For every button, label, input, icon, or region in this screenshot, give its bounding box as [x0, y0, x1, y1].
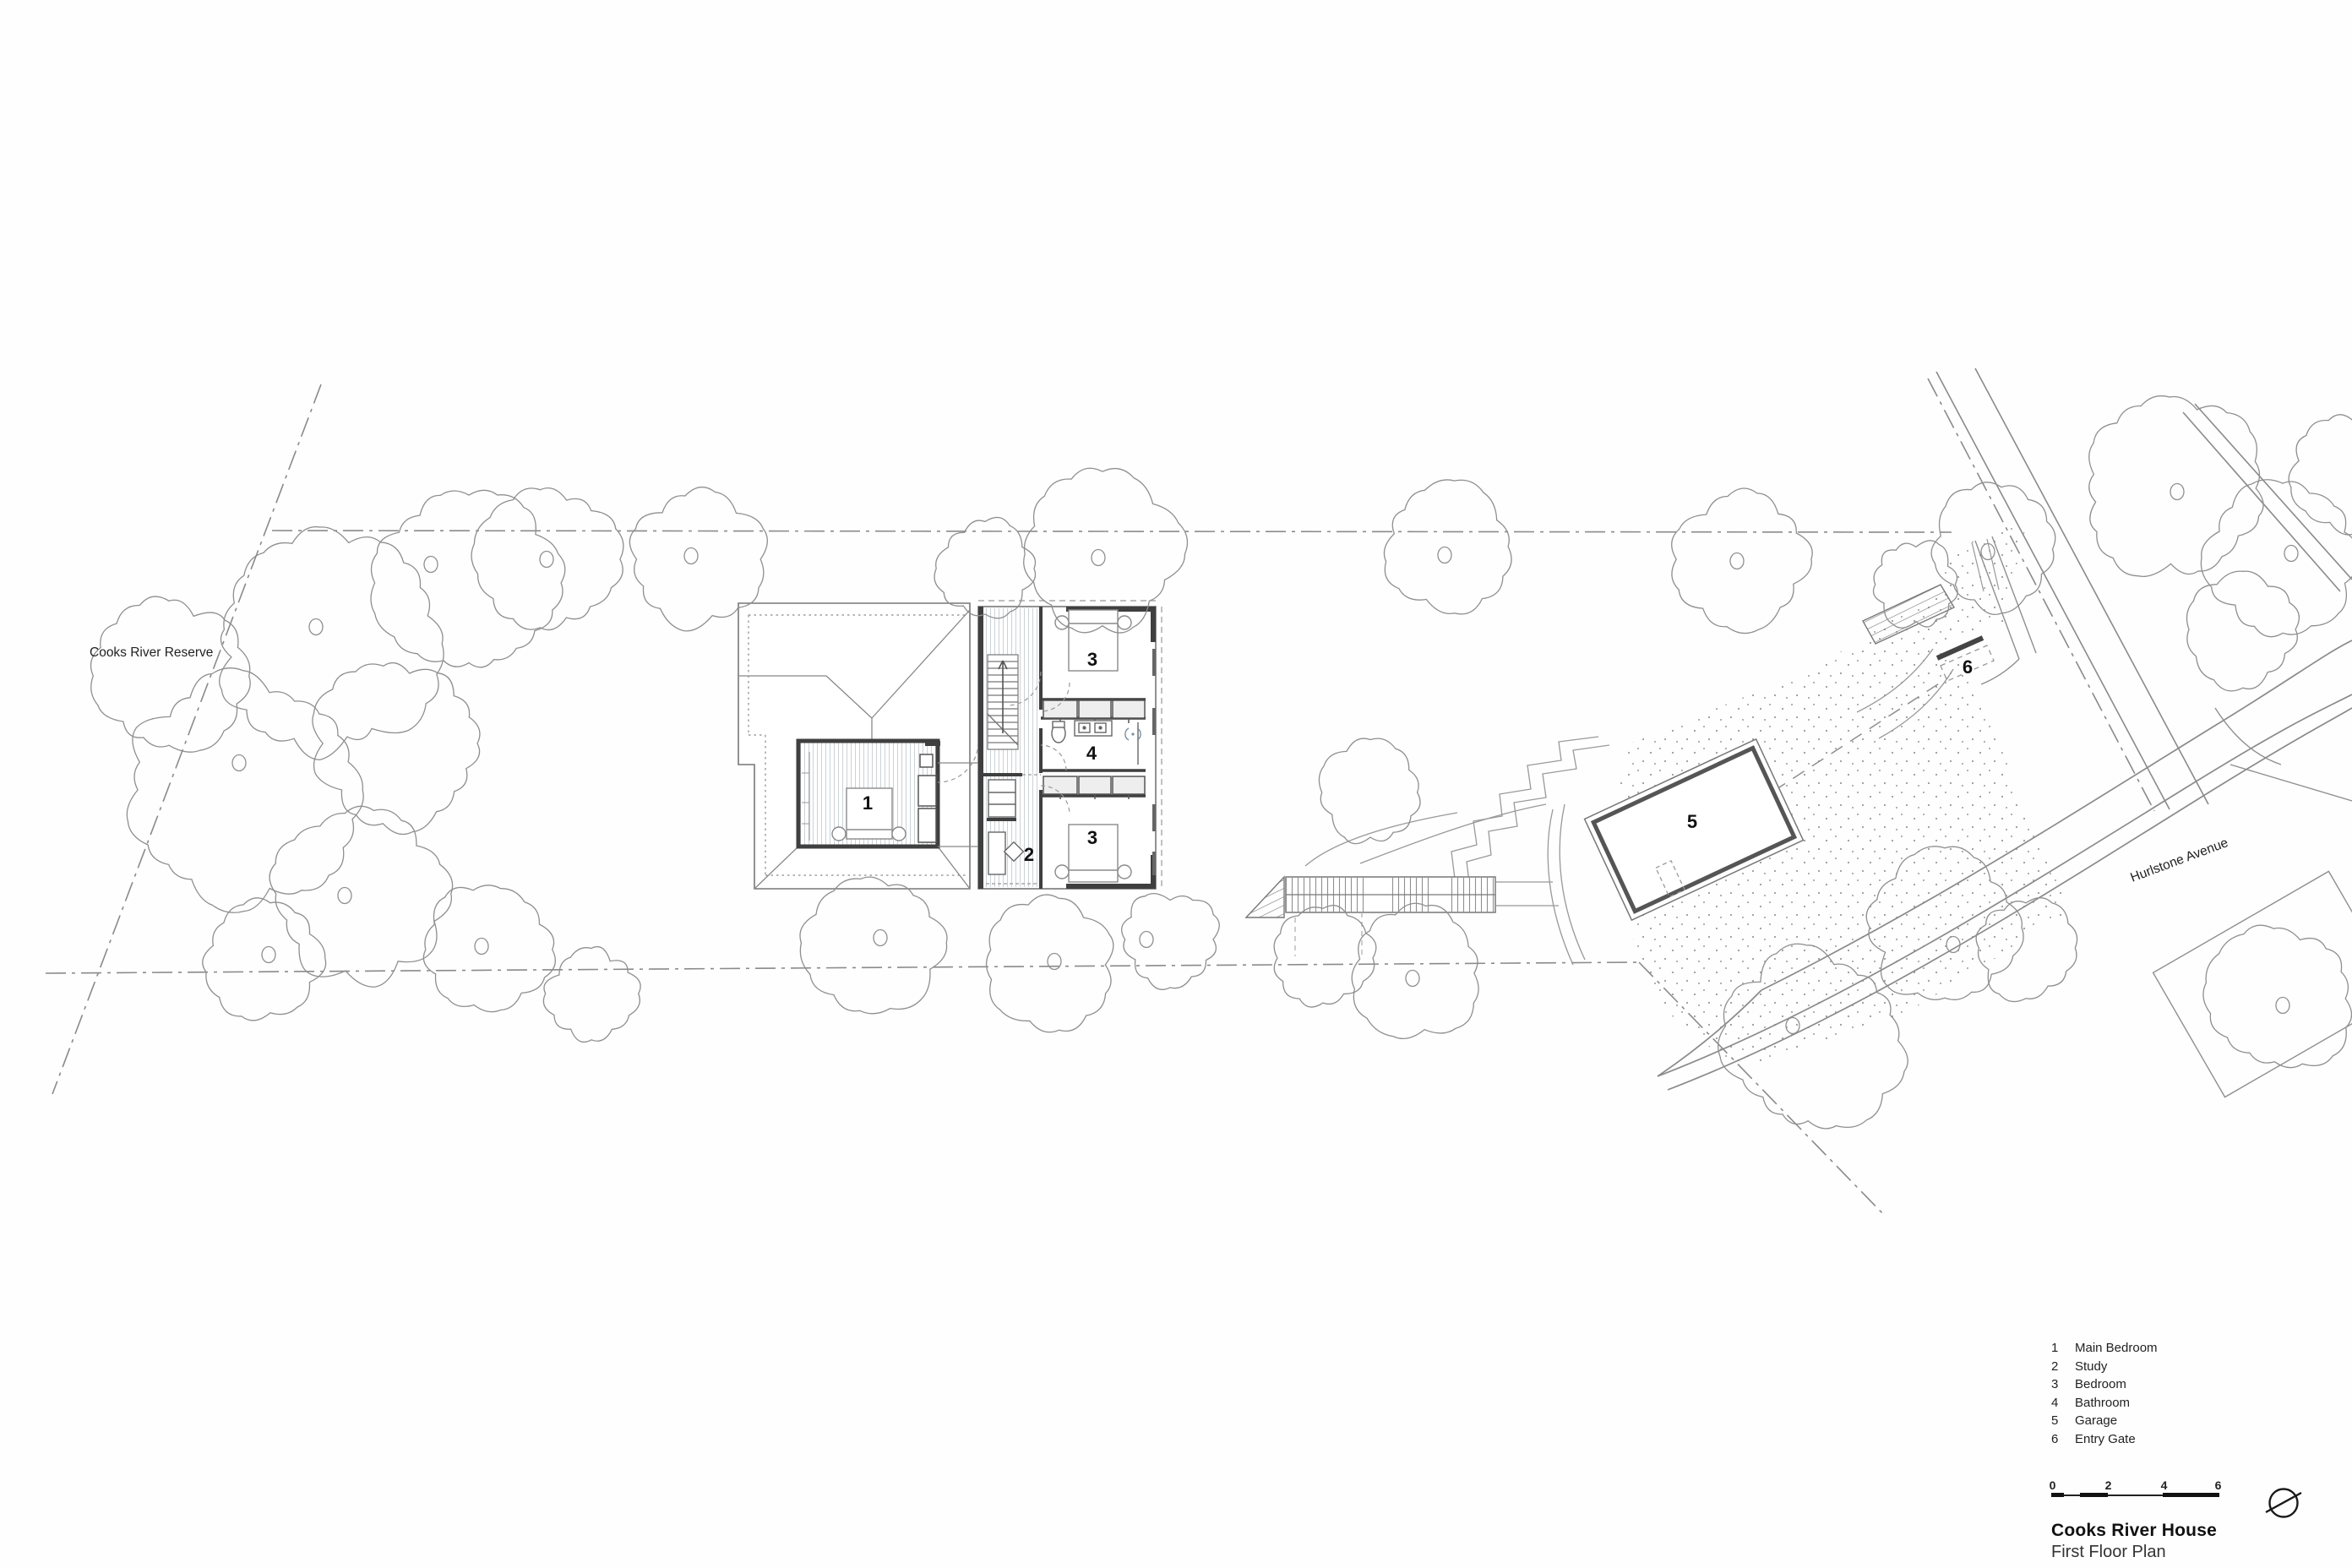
legend-item: 5 Garage — [2051, 1412, 2330, 1430]
house-right-wing — [978, 601, 1162, 889]
legend-label: Garage — [2075, 1412, 2117, 1430]
boundary-south — [46, 962, 1639, 973]
tree-canopy — [1319, 738, 1420, 844]
sheet-subtitle: First Floor Plan — [2051, 1543, 2166, 1562]
tree-trunk — [2284, 546, 2298, 562]
north-arrow-icon — [2264, 1484, 2303, 1522]
stair — [988, 655, 1018, 749]
tree-canopy — [800, 877, 947, 1014]
label-bedroom-top: 3 — [1087, 649, 1097, 670]
label-bathroom: 4 — [1086, 743, 1097, 764]
legend-label: Entry Gate — [2075, 1430, 2136, 1449]
tree-trunk — [232, 755, 246, 771]
scale-tick-label: 0 — [2050, 1478, 2056, 1492]
tree-canopy — [220, 527, 444, 760]
tree-canopy — [2289, 415, 2352, 535]
tree-canopy — [543, 947, 640, 1043]
tree-canopy — [987, 895, 1113, 1032]
scale-bar-graphic — [2051, 1493, 2219, 1497]
tree-trunk — [540, 552, 553, 568]
label-garage: 5 — [1687, 811, 1697, 832]
legend-label: Bathroom — [2075, 1394, 2130, 1413]
tree-canopy — [1672, 488, 1812, 634]
tree-canopy — [2203, 925, 2352, 1067]
site-plan-drawing: 1 2 3 4 3 5 6 Cooks River Reserve Hurlst… — [0, 0, 2352, 1568]
legend-num: 5 — [2051, 1412, 2075, 1430]
legend-label: Main Bedroom — [2075, 1339, 2158, 1358]
scale-bar: 0 2 4 6 — [2051, 1478, 2219, 1497]
terrain-contours — [1305, 737, 1609, 965]
house-left-wing — [738, 603, 978, 889]
scale-tick-label: 2 — [2105, 1478, 2112, 1492]
tree-trunk — [475, 939, 488, 955]
legend-item: 4 Bathroom — [2051, 1394, 2330, 1413]
scale-tick-label: 6 — [2215, 1478, 2222, 1492]
legend-num: 6 — [2051, 1430, 2075, 1449]
tree-trunk — [684, 548, 698, 564]
tree-trunk — [1140, 932, 1153, 948]
tree-canopy — [2186, 571, 2299, 691]
scale-tick-label: 4 — [2161, 1478, 2168, 1492]
legend-item: 1 Main Bedroom — [2051, 1339, 2330, 1358]
legend-num: 4 — [2051, 1394, 2075, 1413]
tree-canopy — [423, 885, 555, 1012]
tree-trunk — [1406, 971, 1419, 987]
tree-canopy — [371, 490, 565, 667]
tree-trunk — [2276, 998, 2289, 1014]
label-reserve: Cooks River Reserve — [90, 645, 213, 660]
tree-trunk — [338, 888, 351, 904]
tree-trunk — [1048, 954, 1061, 970]
boundary-north — [272, 531, 1952, 532]
boundary-west-diagonal — [52, 384, 321, 1094]
label-bedroom-bottom: 3 — [1087, 827, 1097, 848]
tree-trunk — [1438, 547, 1451, 563]
legend-item: 2 Study — [2051, 1358, 2330, 1376]
tree-canopy — [127, 668, 363, 913]
label-entry-gate: 6 — [1963, 656, 1973, 678]
floor-plan-sheet: 1 2 3 4 3 5 6 Cooks River Reserve Hurlst… — [0, 0, 2352, 1568]
label-main-bedroom: 1 — [863, 792, 873, 814]
tree-trunk — [1092, 550, 1105, 566]
tree-trunk — [424, 557, 438, 573]
tree-canopy — [269, 806, 453, 987]
tree-trunk — [262, 947, 275, 963]
tree-canopy — [1122, 894, 1220, 990]
legend-label: Bedroom — [2075, 1375, 2126, 1394]
legend-item: 6 Entry Gate — [2051, 1430, 2330, 1449]
label-study: 2 — [1024, 844, 1034, 865]
tree-canopy — [1384, 480, 1511, 614]
legend-label: Study — [2075, 1358, 2107, 1376]
legend-num: 1 — [2051, 1339, 2075, 1358]
tree-trunk — [309, 619, 323, 635]
legend-num: 3 — [2051, 1375, 2075, 1394]
tree-trunk — [874, 930, 887, 946]
tree-canopy — [2201, 480, 2352, 637]
tree-canopy — [203, 898, 326, 1021]
tree-canopy — [1274, 906, 1376, 1007]
tree-canopy — [471, 488, 623, 630]
tree-layer — [90, 396, 2352, 1129]
deck-ramp — [1246, 877, 1284, 917]
tree-canopy — [2089, 396, 2263, 577]
label-street: Hurlstone Avenue — [2128, 836, 2229, 885]
legend: 1 Main Bedroom 2 Study 3 Bedroom 4 Bathr… — [2051, 1339, 2330, 1448]
legend-item: 3 Bedroom — [2051, 1375, 2330, 1394]
tree-canopy — [90, 596, 250, 752]
tree-trunk — [1730, 553, 1744, 569]
legend-num: 2 — [2051, 1358, 2075, 1376]
sheet-title: Cooks River House — [2051, 1521, 2217, 1541]
tree-trunk — [2170, 484, 2184, 500]
tree-canopy — [934, 517, 1035, 618]
